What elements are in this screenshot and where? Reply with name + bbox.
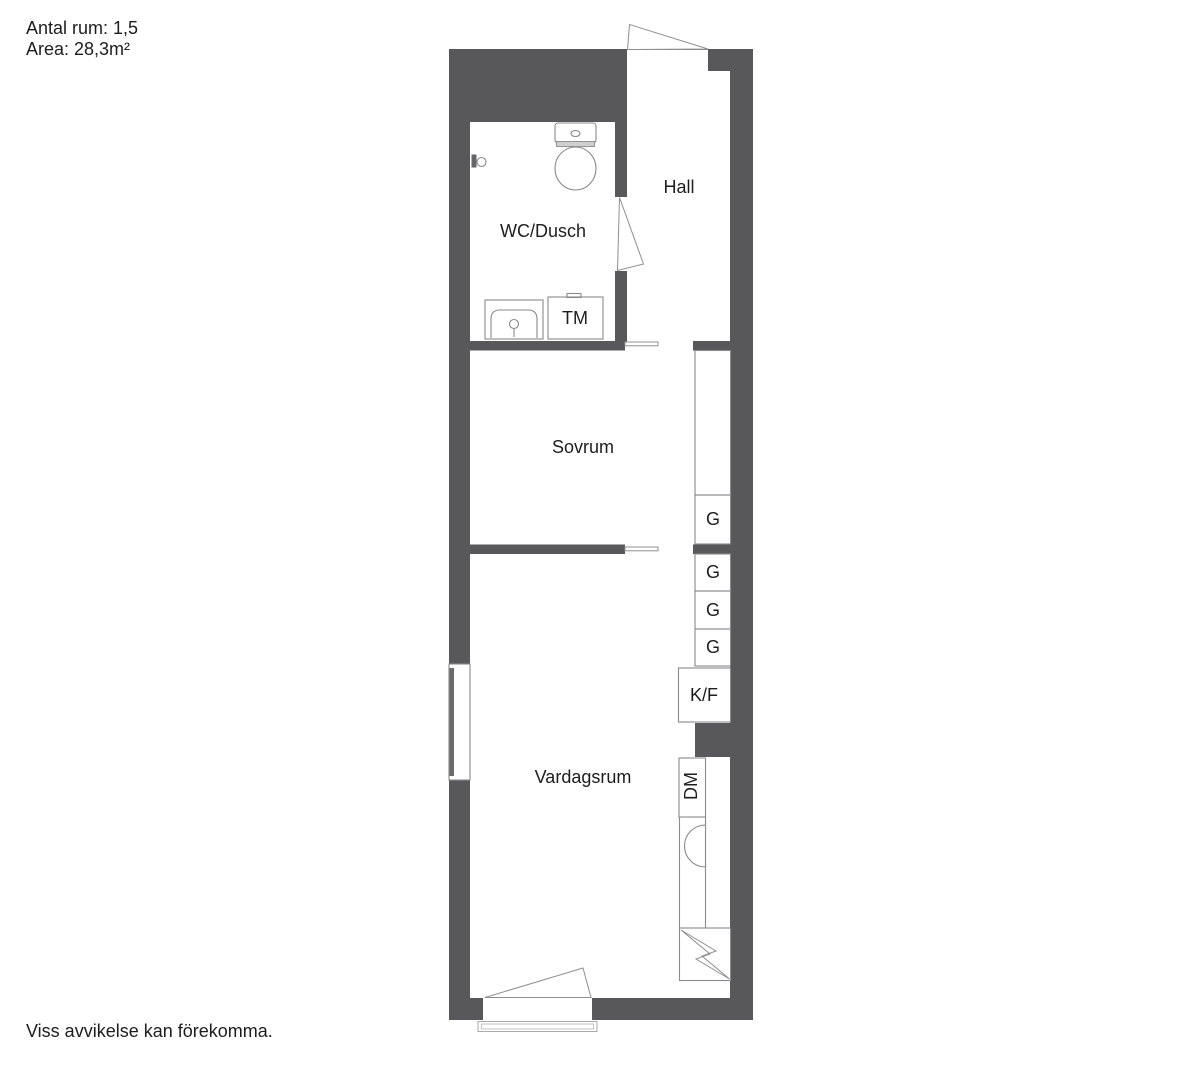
closet-tall	[695, 351, 731, 496]
wall-wc-hall-upper	[615, 122, 627, 197]
sink-faucet	[510, 320, 519, 329]
wall-chunk-kitchen	[695, 723, 731, 757]
toilet-bowl	[555, 147, 596, 190]
window-glass-bar	[450, 668, 455, 776]
balcony-door-swing-icon	[485, 968, 591, 998]
shower-knob	[477, 158, 486, 167]
kf-label: K/F	[690, 686, 718, 704]
sliding-door-icon-sovrum-vardagsrum	[625, 547, 658, 551]
balcony-threshold-icon	[478, 1022, 597, 1032]
closet-strip	[679, 351, 731, 723]
wall-sovrum-vardagsrum	[449, 545, 625, 555]
wall-top-right	[708, 49, 753, 71]
wall-right	[730, 70, 753, 1020]
sliding-door-icon-hall-sovrum	[625, 342, 658, 346]
hall-label: Hall	[663, 178, 694, 196]
kitchen-sink-icon	[685, 825, 706, 867]
entry-door-swing-icon	[628, 25, 709, 50]
vardagsrum-label: Vardagsrum	[535, 768, 632, 786]
wall-left-lower	[449, 780, 470, 1020]
closet-g-label-1: G	[706, 510, 720, 528]
wall-bottom-left	[449, 998, 483, 1020]
shower-valve	[472, 155, 477, 168]
floorplan-drawing	[0, 0, 1200, 1066]
window-icon	[449, 664, 470, 780]
stove-box	[680, 928, 731, 981]
bathroom-sink-icon	[485, 300, 543, 339]
wall-left-upper	[449, 122, 470, 664]
wall-hall-sovrum	[449, 341, 625, 351]
wall-wc-hall-lower	[615, 271, 627, 342]
wall-top-left-block	[449, 49, 627, 122]
wall-chunk-upper-right	[693, 341, 731, 351]
wall-chunk-mid-right	[693, 545, 731, 555]
sovrum-label: Sovrum	[552, 438, 614, 456]
walls	[449, 49, 753, 1020]
wall-bottom-right	[592, 998, 753, 1020]
wc-dusch-label: WC/Dusch	[500, 222, 586, 240]
shower-mixer-icon	[472, 155, 487, 168]
wc-door-swing-icon	[618, 198, 644, 271]
closet-g-label-2: G	[706, 563, 720, 581]
closet-g-label-4: G	[706, 638, 720, 656]
closet-g-label-3: G	[706, 601, 720, 619]
dm-label: DM	[682, 772, 700, 800]
toilet-flush-button	[571, 131, 580, 137]
disclaimer-text: Viss avvikelse kan förekomma.	[26, 1021, 273, 1042]
toilet-tank-band	[557, 142, 595, 147]
tm-label: TM	[562, 309, 588, 327]
toilet-icon	[555, 123, 596, 190]
floorplan-page: Antal rum: 1,5 Area: 28,3m²	[0, 0, 1200, 1066]
